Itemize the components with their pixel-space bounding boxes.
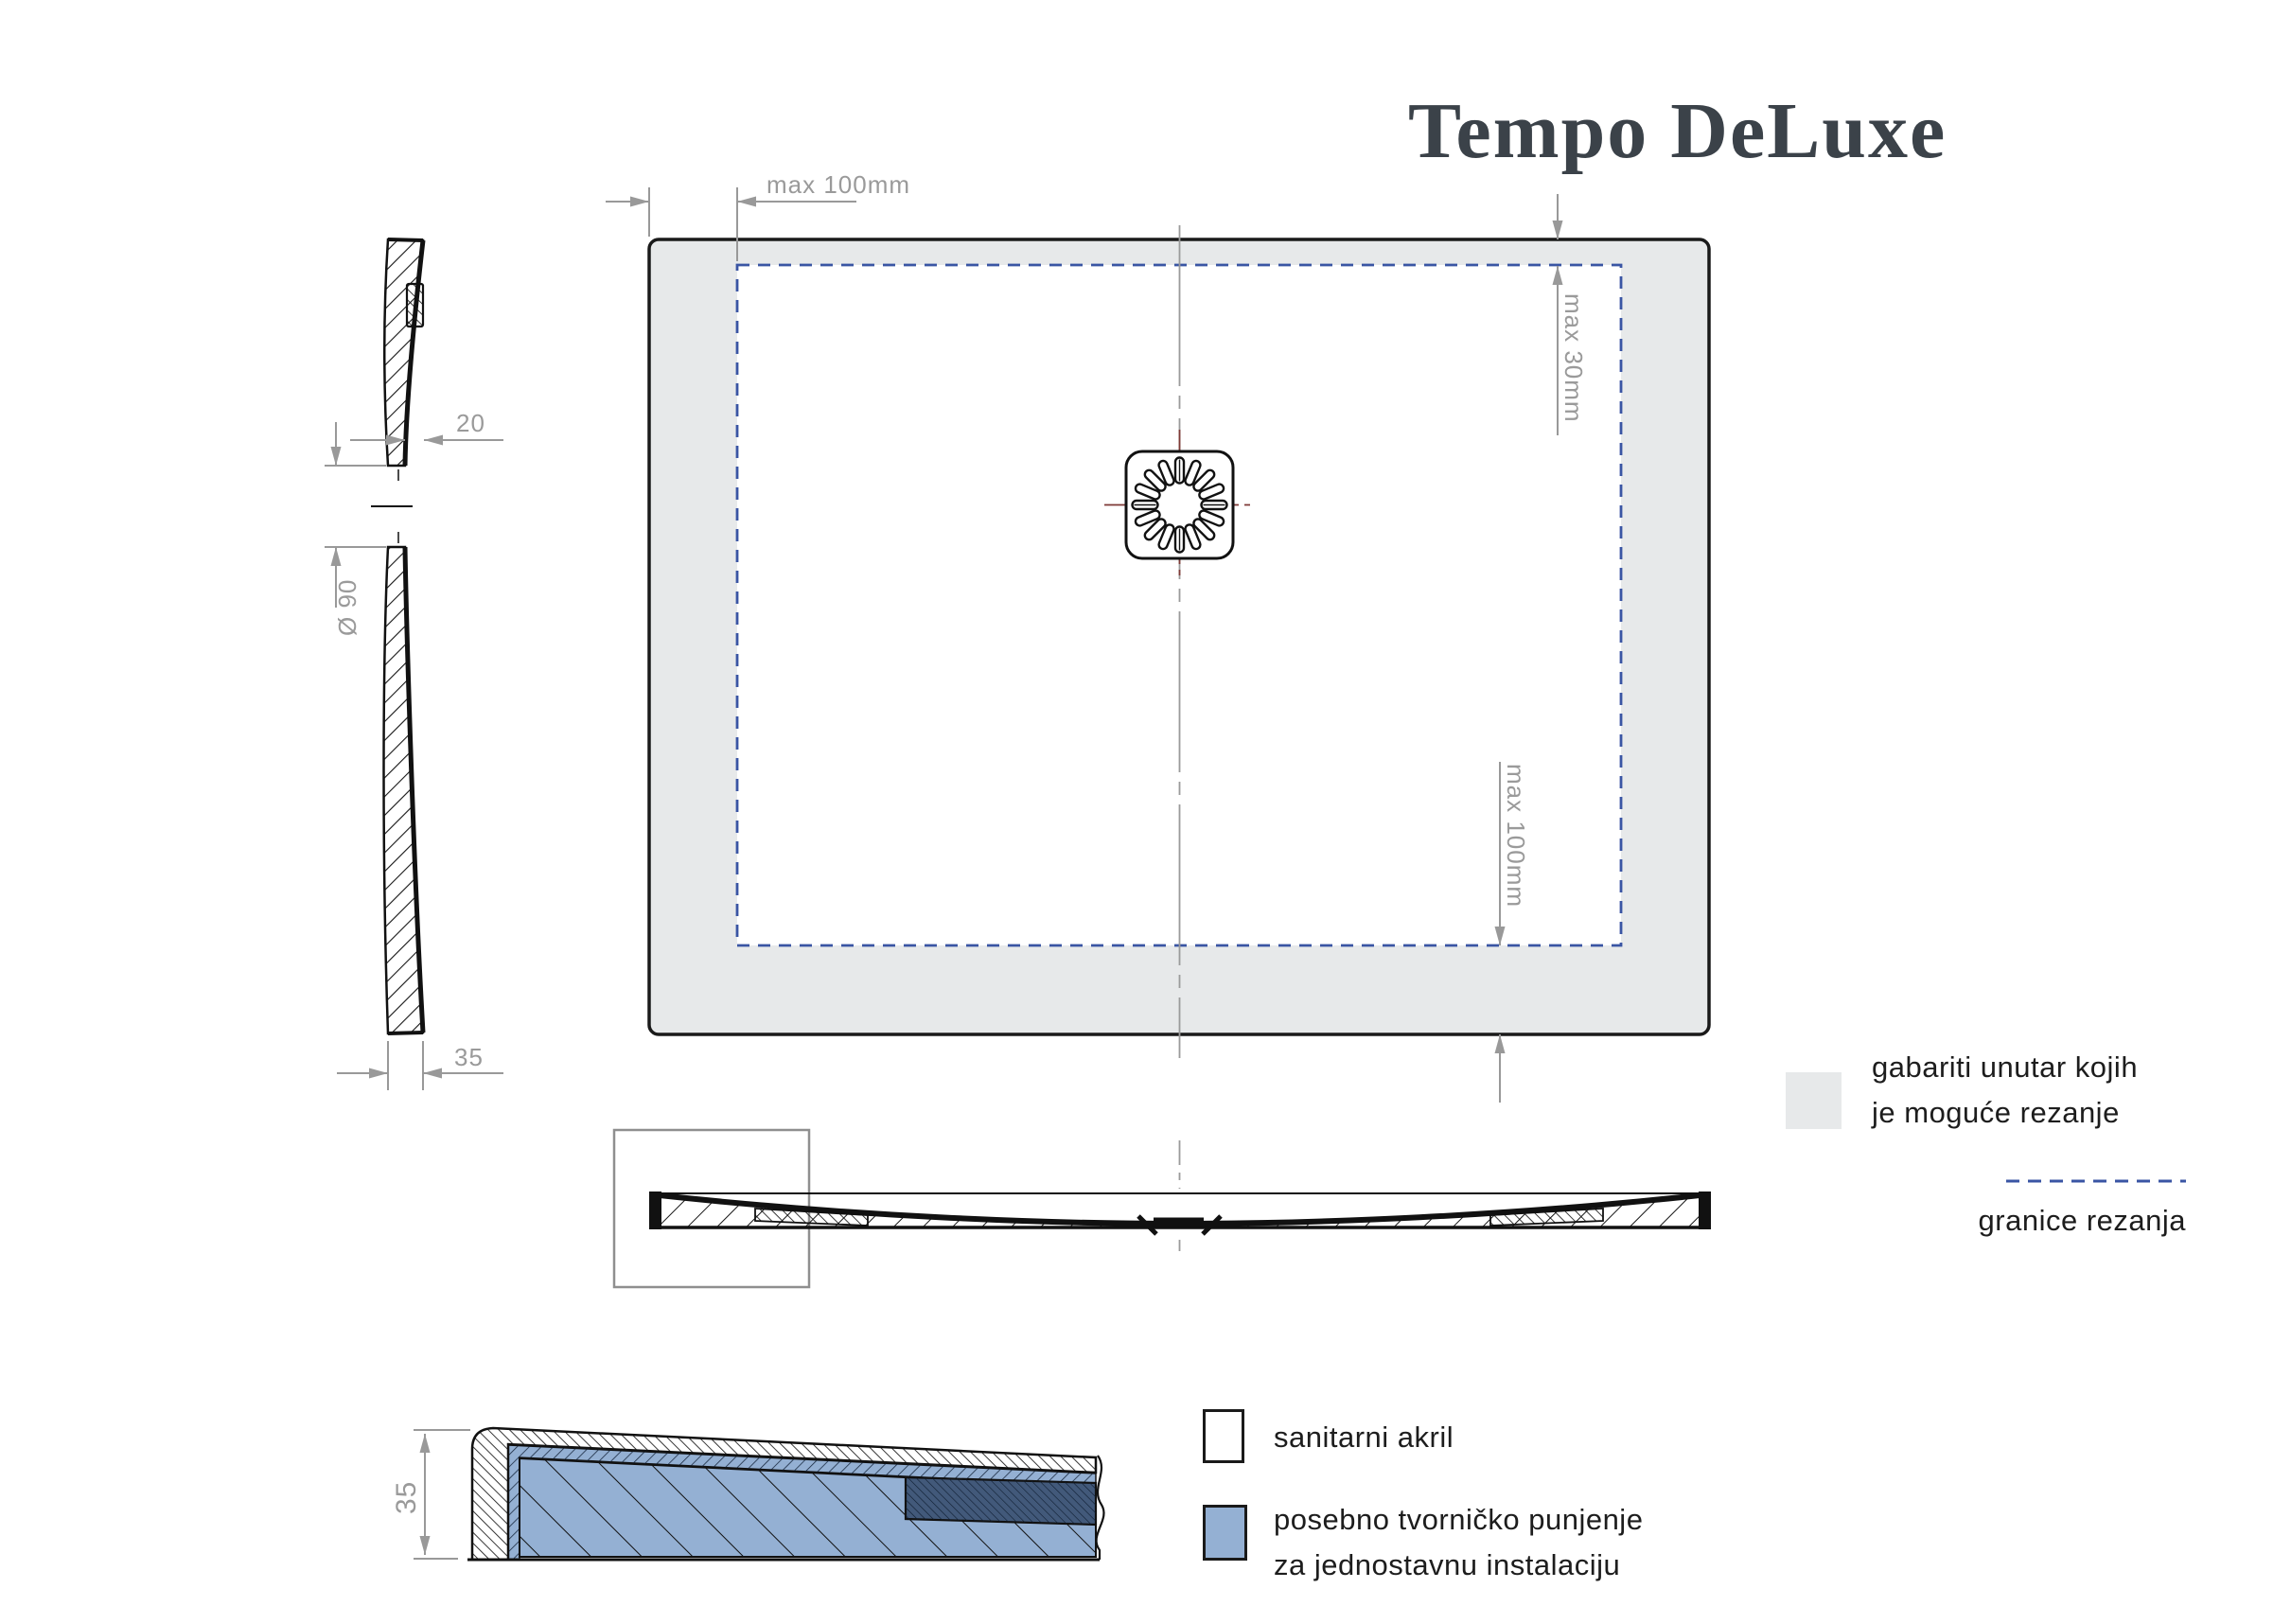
side-corner-insert <box>407 284 423 327</box>
acrylic-label: sanitarni akril <box>1274 1421 1454 1455</box>
edge-detail-view <box>414 1428 1104 1560</box>
acrylic-swatch <box>1203 1409 1244 1463</box>
dim-label-drain-diameter: Ø 90 <box>333 579 362 636</box>
cross-section-view <box>614 1130 1711 1287</box>
dim-label-left-margin: max 100mm <box>767 170 910 200</box>
side-elevation-view <box>325 239 503 1090</box>
dim-label-bottom-margin: max 100mm <box>1501 764 1530 908</box>
cut-area-swatch <box>1786 1072 1842 1129</box>
filling-label-line1: posebno tvorničko punjenje <box>1274 1503 1643 1537</box>
technical-drawing-page: Tempo DeLuxe max 100mm max 30mm max 100m… <box>0 0 2291 1624</box>
dim-label-detail-height: 35 <box>391 1481 423 1514</box>
page-title: Tempo DeLuxe <box>1408 85 1947 177</box>
filling-swatch <box>1203 1505 1247 1561</box>
dim-label-center-thickness: 20 <box>456 409 485 438</box>
filling-label-line2: za jednostavnu instalaciju <box>1274 1548 1620 1582</box>
cut-boundary-label: granice rezanja <box>1930 1204 2186 1238</box>
cut-area-label-line2: je moguće rezanje <box>1872 1096 2120 1130</box>
drawing-canvas <box>0 0 2291 1624</box>
dim-label-top-margin: max 30mm <box>1559 293 1588 423</box>
cut-area-label-line1: gabariti unutar kojih <box>1872 1050 2138 1085</box>
dim-label-edge-height: 35 <box>454 1043 484 1072</box>
break-line <box>1097 1456 1104 1560</box>
plan-view <box>606 187 1709 1103</box>
